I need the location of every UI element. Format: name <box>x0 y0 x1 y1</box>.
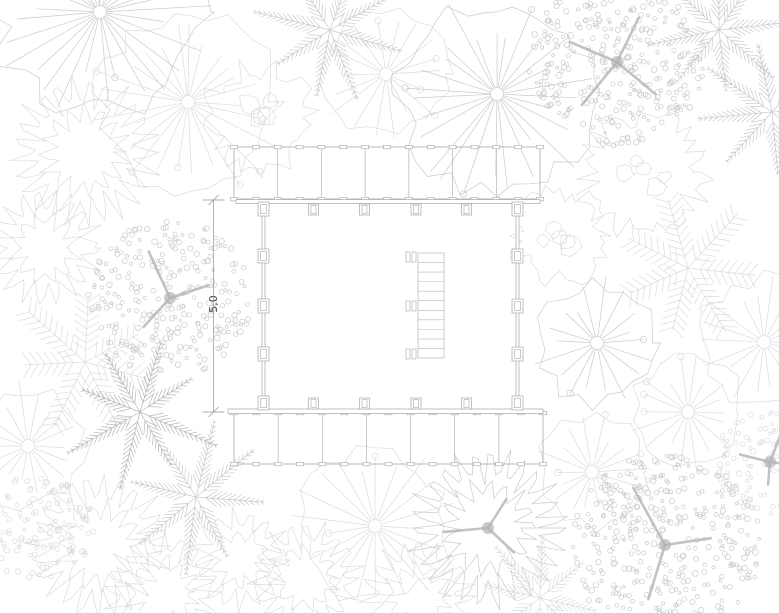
beam-column-marker <box>411 204 421 215</box>
tree-symbol-scribble <box>24 474 171 613</box>
stair-post-marker <box>406 349 410 359</box>
tree-symbol-scribble <box>104 531 221 613</box>
tree-symbol-scribble <box>9 75 160 227</box>
tree-symbol-bubble <box>86 219 251 372</box>
tree-symbol-spoke <box>320 8 453 138</box>
tree-symbol-spoke <box>535 277 661 411</box>
tree-symbol-scribble <box>0 190 101 304</box>
canopy-fascia <box>236 200 540 204</box>
bottom-canopy <box>231 411 547 466</box>
wall-column-marker <box>512 202 523 216</box>
tree-symbol-spoke <box>700 270 779 402</box>
architectural-site-plan: 5,0 <box>0 0 779 613</box>
beam-column-marker <box>462 398 472 409</box>
tree-symbol-fern <box>253 0 402 100</box>
tree-symbol-bubble <box>714 411 779 516</box>
wall-column-marker <box>258 202 269 216</box>
beam-column-marker <box>360 204 370 215</box>
tree-symbol-bubble <box>0 476 96 580</box>
tree-symbol-lattice <box>15 292 162 436</box>
wall-column-marker <box>512 299 523 313</box>
tree-symbol-spoke <box>632 353 739 472</box>
wall-column-marker <box>512 396 523 410</box>
wall-column-marker <box>258 396 269 410</box>
wall-column-marker <box>258 249 269 263</box>
stair-post-marker <box>412 252 416 262</box>
beam-column-marker <box>360 398 370 409</box>
tree-symbol-scribble <box>190 507 290 613</box>
top-canopy <box>231 145 544 201</box>
stair-post-marker <box>412 349 416 359</box>
beam-column-marker <box>411 398 421 409</box>
wall-column-marker <box>258 347 269 361</box>
tree-symbol-jagged <box>577 112 714 237</box>
tree-symbol-scribble <box>359 543 476 613</box>
tree-symbol-jagged <box>204 60 319 177</box>
tree-symbol-fern <box>483 536 596 613</box>
tree-symbol-spoke <box>391 4 599 197</box>
wall-column-marker <box>258 299 269 313</box>
stair-post-marker <box>406 301 410 311</box>
tree-symbol-scribble <box>247 521 365 613</box>
beam-column-marker <box>309 204 319 215</box>
tree-symbol-fern <box>66 342 218 490</box>
canopy-fascia <box>228 409 543 414</box>
wall-column-marker <box>512 249 523 263</box>
stair-post-marker <box>406 252 410 262</box>
beam-column-marker <box>462 204 472 215</box>
wall-column-marker <box>512 347 523 361</box>
beam-column-marker <box>309 398 319 409</box>
tree-symbol-lattice <box>620 191 759 340</box>
vegetation-layer <box>0 0 779 613</box>
site-plan-drawing: 5,0 <box>0 0 779 613</box>
tree-symbol-spoke <box>293 446 454 602</box>
stair-post-marker <box>412 301 416 311</box>
staircase <box>418 253 444 358</box>
tree-symbol-fern <box>647 0 779 92</box>
tree-symbol-fern <box>697 43 779 174</box>
building-plan <box>228 145 547 466</box>
